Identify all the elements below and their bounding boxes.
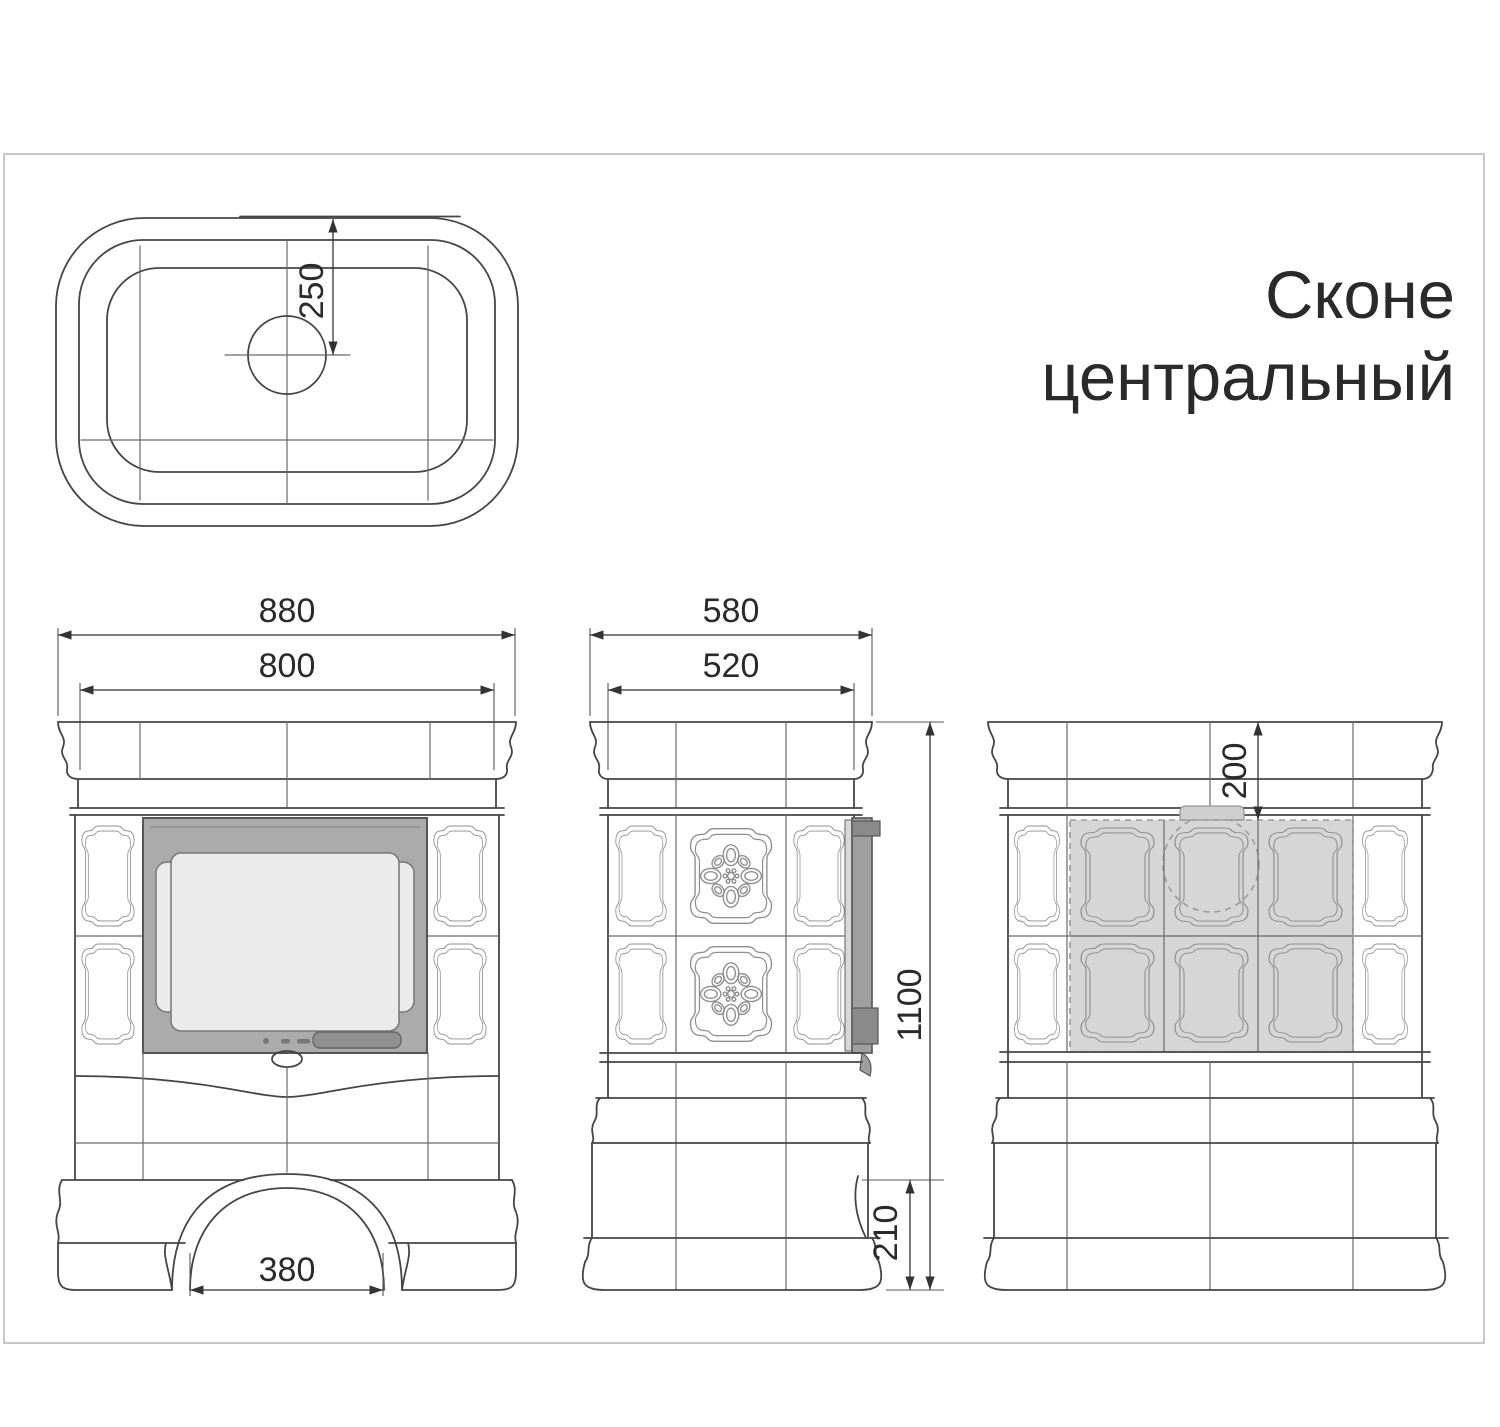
dim-front-arch-width: 380 xyxy=(190,1251,383,1296)
drawing-sheet: Сконе центральный 250 880 xyxy=(0,0,1500,1427)
title-block: Сконе центральный xyxy=(1041,258,1455,415)
door-edge-profile xyxy=(845,818,880,1076)
dim-label-800: 800 xyxy=(259,647,316,685)
door-hinge-top xyxy=(852,821,880,836)
title-line1: Сконе xyxy=(1265,258,1455,333)
dim-label-250: 250 xyxy=(293,263,331,320)
dim-side-arch-height: 210 xyxy=(862,1180,944,1290)
side-arch-profile xyxy=(855,1176,866,1238)
front-left-foot xyxy=(58,1243,172,1290)
title-line2: центральный xyxy=(1041,340,1455,415)
dim-label-880: 880 xyxy=(259,592,316,630)
dim-side-body-depth: 520 xyxy=(608,647,854,770)
page-border xyxy=(4,154,1484,1343)
rosette-tile-top xyxy=(691,829,772,924)
front-right-foot xyxy=(402,1243,516,1290)
door-latch-tip xyxy=(860,1053,871,1076)
door-hinge-bottom xyxy=(852,1008,878,1044)
door-vent-slot-2 xyxy=(297,1039,310,1044)
top-view: 250 xyxy=(56,217,518,527)
dim-label-520: 520 xyxy=(703,647,760,685)
door-pilot-dot xyxy=(263,1038,269,1044)
rosette-tile-bottom xyxy=(691,947,772,1042)
dim-label-1100: 1100 xyxy=(891,968,929,1041)
front-view: 880 800 xyxy=(56,592,517,1296)
flue-collar-tab xyxy=(1180,806,1244,820)
dim-label-580: 580 xyxy=(703,592,760,630)
dim-rear-flue-offset: 200 xyxy=(1216,722,1258,820)
dim-label-200: 200 xyxy=(1216,743,1254,800)
dim-label-380: 380 xyxy=(259,1251,316,1289)
stove-technical-drawing: Сконе центральный 250 880 xyxy=(0,0,1500,1427)
dim-label-210: 210 xyxy=(867,1205,905,1262)
side-view: 580 520 xyxy=(583,592,944,1290)
door-handle xyxy=(313,1032,401,1048)
door-vent-slot-1 xyxy=(281,1039,290,1044)
rear-view: 200 xyxy=(984,722,1448,1290)
fire-door xyxy=(143,818,427,1053)
door-glass xyxy=(171,853,399,1031)
